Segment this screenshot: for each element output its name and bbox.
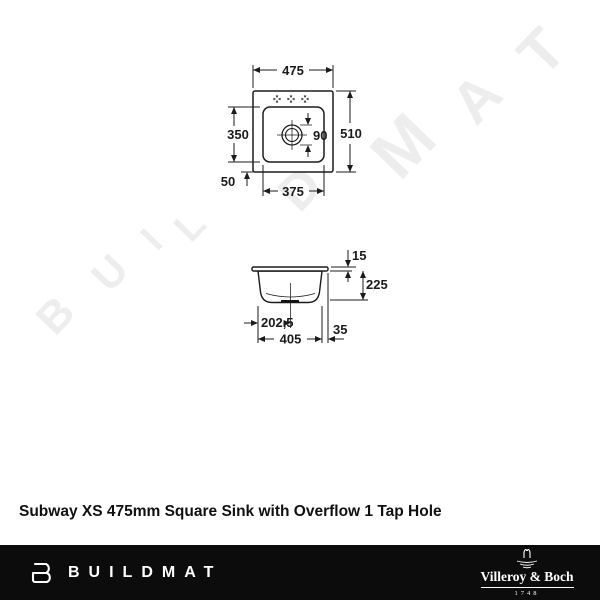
footer: BUILDMAT Villeroy & Boch 1748 [0, 545, 600, 600]
dim-drain-diameter-label: 90 [313, 128, 327, 143]
dim-center-offset-label: 202,5 [261, 315, 294, 330]
buildmat-brand: BUILDMAT [30, 560, 222, 586]
dim-bowl-width-label: 405 [280, 332, 302, 347]
dim-edge-offset-label: 35 [333, 322, 347, 337]
page: B U I L D M A T [0, 0, 600, 600]
dim-bowl-width-label: 375 [282, 184, 304, 199]
villeroy-boch-logo: Villeroy & Boch 1748 [472, 549, 582, 597]
sink-section-view-drawing: 15 225 202,5 405 35 [230, 240, 390, 350]
rim-flange [252, 267, 328, 271]
dim-bowl-depth-label: 225 [366, 277, 388, 292]
product-title: Subway XS 475mm Square Sink with Overflo… [19, 503, 442, 521]
dim-center-offset: 202,5 [244, 315, 294, 330]
dim-bowl-length-label: 350 [227, 127, 249, 142]
villeroy-boch-name: Villeroy & Boch [481, 569, 574, 588]
dim-bowl-width: 405 [258, 332, 322, 347]
buildmat-logo-icon [30, 560, 56, 586]
bowl-section [258, 271, 322, 303]
watermark-letter: T [508, 18, 577, 86]
buildmat-brand-name: BUILDMAT [68, 564, 222, 582]
dim-overall-width: 475 [253, 63, 333, 88]
watermark-letter: A [442, 64, 513, 134]
dim-rim-height-label: 15 [352, 248, 366, 263]
dim-overall-width-label: 475 [282, 63, 304, 78]
villeroy-boch-icon [507, 549, 547, 569]
dim-overall-height-label: 510 [340, 126, 362, 141]
sink-plan-view-drawing: 475 510 350 50 [210, 55, 380, 205]
watermark-letter: L [167, 203, 213, 248]
dim-bowl-depth: 225 [330, 271, 388, 300]
dim-rear-offset: 50 [221, 172, 253, 189]
dim-rear-offset-label: 50 [221, 174, 235, 189]
waste-outlet [281, 300, 299, 303]
watermark-letter: U [84, 247, 135, 298]
dim-overall-height: 510 [336, 91, 362, 172]
dim-edge-offset: 35 [328, 322, 347, 342]
villeroy-boch-year: 1748 [515, 590, 540, 597]
watermark-letter: B [29, 289, 83, 342]
watermark-letter: I [135, 223, 170, 257]
